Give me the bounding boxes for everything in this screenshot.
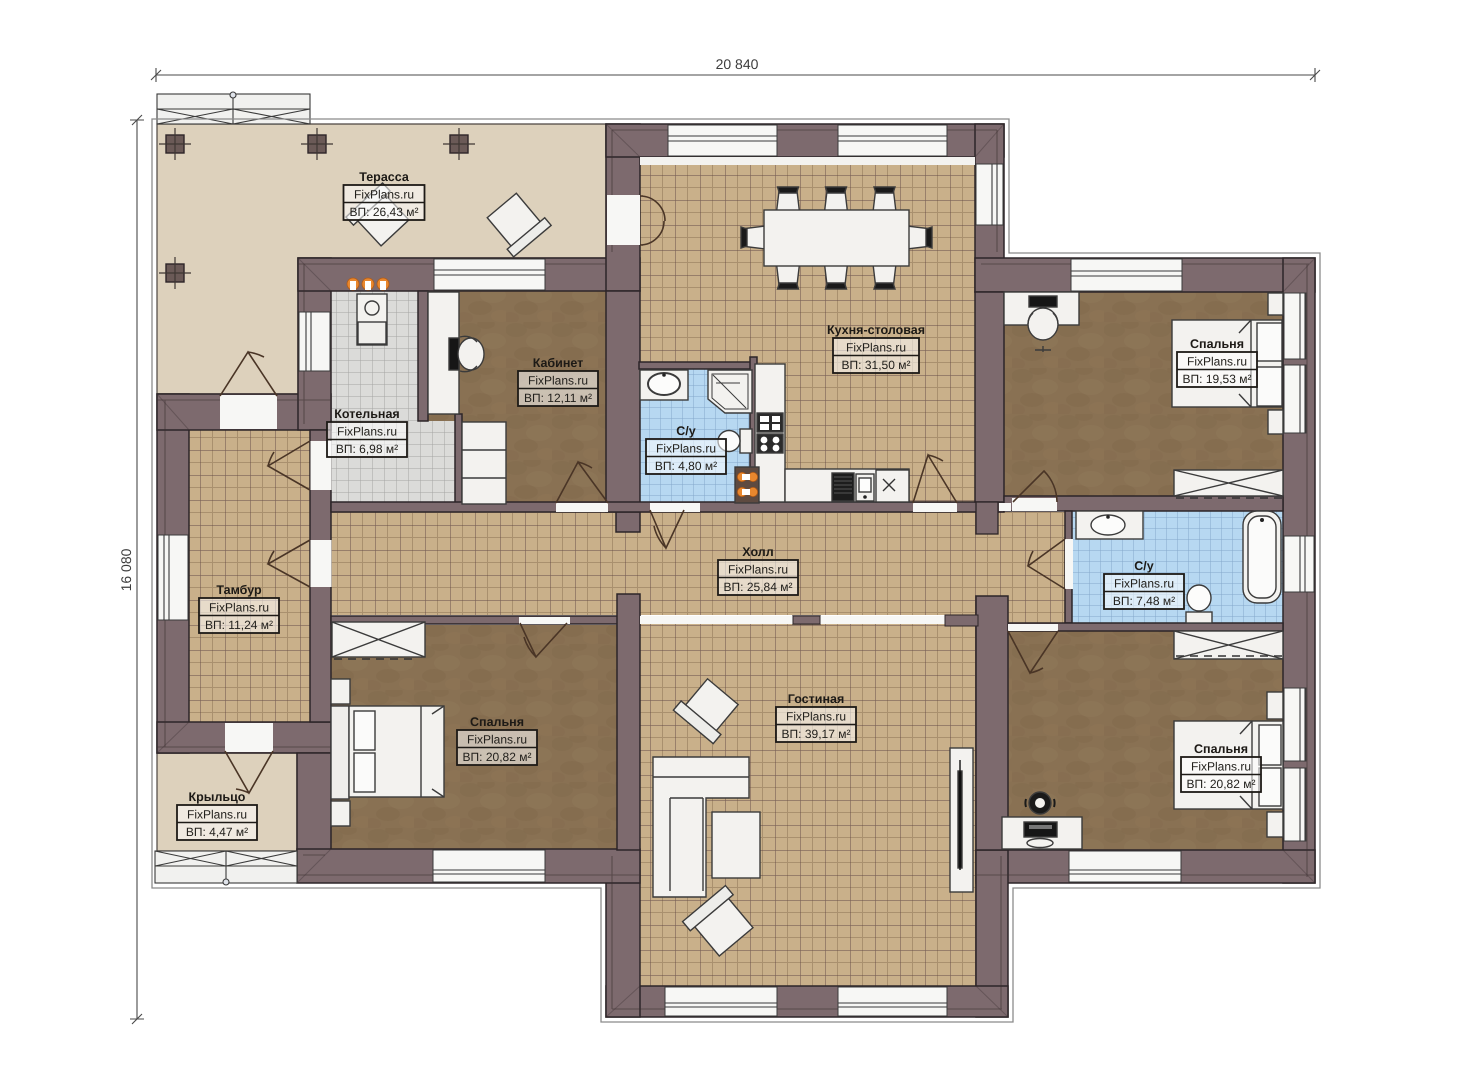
svg-text:С/у: С/у — [676, 424, 696, 438]
svg-text:FixPlans.ru: FixPlans.ru — [187, 808, 247, 822]
svg-text:FixPlans.ru: FixPlans.ru — [467, 733, 527, 747]
svg-text:С/у: С/у — [1134, 559, 1154, 573]
svg-text:Тамбур: Тамбур — [216, 583, 262, 597]
svg-text:FixPlans.ru: FixPlans.ru — [337, 425, 397, 439]
svg-text:ВП: 20,82 м²: ВП: 20,82 м² — [1187, 777, 1256, 791]
svg-text:Спальня: Спальня — [470, 715, 524, 729]
svg-text:ВП: 19,53 м²: ВП: 19,53 м² — [1183, 372, 1252, 386]
svg-text:ВП: 6,98 м²: ВП: 6,98 м² — [336, 442, 398, 456]
svg-text:FixPlans.ru: FixPlans.ru — [1191, 760, 1251, 774]
svg-text:FixPlans.ru: FixPlans.ru — [846, 341, 906, 355]
svg-text:ВП: 31,50 м²: ВП: 31,50 м² — [842, 358, 911, 372]
svg-text:ВП: 11,24 м²: ВП: 11,24 м² — [205, 618, 273, 632]
svg-text:Спальня: Спальня — [1194, 742, 1248, 756]
svg-text:Кухня-столовая: Кухня-столовая — [827, 323, 925, 337]
svg-text:FixPlans.ru: FixPlans.ru — [354, 188, 414, 202]
svg-text:ВП: 20,82 м²: ВП: 20,82 м² — [463, 750, 532, 764]
svg-text:Терасса: Терасса — [359, 170, 410, 184]
svg-text:20 840: 20 840 — [716, 56, 759, 72]
svg-text:Гостиная: Гостиная — [788, 692, 845, 706]
svg-text:FixPlans.ru: FixPlans.ru — [528, 374, 588, 388]
svg-text:ВП: 12,11 м²: ВП: 12,11 м² — [524, 391, 592, 405]
svg-text:ВП: 4,47 м²: ВП: 4,47 м² — [186, 825, 248, 839]
svg-text:ВП: 25,84 м²: ВП: 25,84 м² — [724, 580, 793, 594]
svg-text:ВП: 26,43 м²: ВП: 26,43 м² — [350, 205, 419, 219]
svg-text:Кабинет: Кабинет — [533, 356, 584, 370]
svg-text:ВП: 7,48 м²: ВП: 7,48 м² — [1113, 594, 1175, 608]
svg-text:ВП: 39,17 м²: ВП: 39,17 м² — [782, 727, 851, 741]
svg-text:FixPlans.ru: FixPlans.ru — [656, 442, 716, 456]
svg-text:FixPlans.ru: FixPlans.ru — [786, 710, 846, 724]
svg-text:ВП: 4,80 м²: ВП: 4,80 м² — [655, 459, 717, 473]
svg-text:FixPlans.ru: FixPlans.ru — [728, 563, 788, 577]
svg-text:FixPlans.ru: FixPlans.ru — [209, 601, 269, 615]
svg-text:Холл: Холл — [742, 545, 773, 559]
svg-text:Спальня: Спальня — [1190, 337, 1244, 351]
svg-text:FixPlans.ru: FixPlans.ru — [1187, 355, 1247, 369]
svg-text:Крыльцо: Крыльцо — [189, 790, 246, 804]
svg-text:16 080: 16 080 — [118, 548, 134, 591]
svg-text:FixPlans.ru: FixPlans.ru — [1114, 577, 1174, 591]
svg-text:Котельная: Котельная — [334, 407, 399, 421]
